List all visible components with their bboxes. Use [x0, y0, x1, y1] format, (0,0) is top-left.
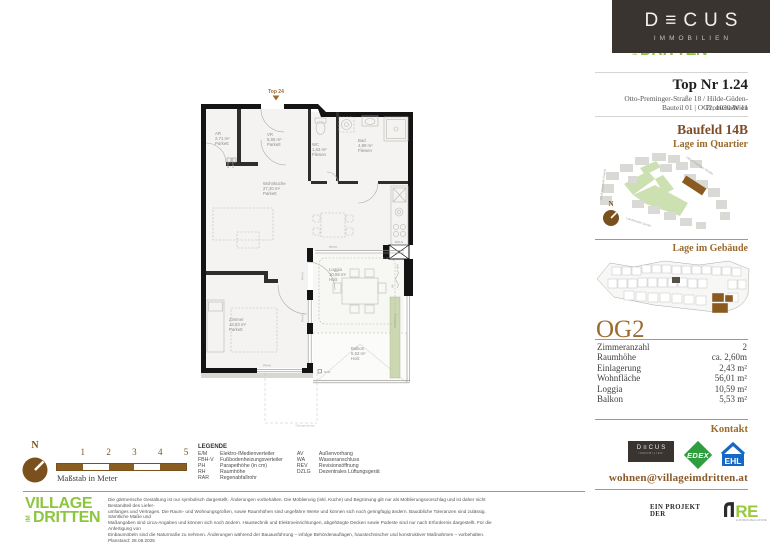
row-label: Wohnfläche [597, 373, 640, 383]
row-label: Raumhöhe [597, 352, 636, 362]
disclaimer-line: Einbaumöbeln sind die Naturmaße zu nehme… [108, 532, 502, 544]
divider [595, 239, 748, 240]
scale-tick: 4 [155, 447, 165, 457]
disclaimer-text: Die gärtnerische Gestaltung ist nur symb… [108, 497, 502, 543]
divider [595, 339, 748, 340]
table-row: Zimmeranzahl2 [597, 342, 747, 352]
legend-entry: RARRegenabfallrohr [198, 476, 283, 482]
row-label: Einlagerung [597, 363, 641, 373]
em-label: E/M [226, 162, 230, 168]
row-value: ca. 2,60m [712, 352, 747, 362]
compass-n-label: N [608, 200, 613, 208]
ph-label: PH=0 [329, 245, 337, 249]
ehl-logo: EHL [719, 442, 747, 468]
entrance-top-label: Top 24 [268, 89, 284, 95]
site-plan-map: Otto-Preminger-Straße Adolf-Blamauer-Gas… [598, 148, 748, 236]
edex-logo: EDEX [681, 440, 715, 471]
ph-label: PH=0 [301, 272, 305, 280]
compass-n-label: N [31, 440, 39, 451]
row-label: Zimmeranzahl [597, 342, 649, 352]
unit-title: Top Nr 1.24 [595, 77, 748, 94]
are-logo: RE AUSTRIAN REAL ESTATE [722, 500, 770, 522]
village-im: IM [22, 514, 36, 522]
table-row: Balkon5,53 m² [597, 394, 747, 404]
disclaimer-line: Die gärtnerische Gestaltung ist nur symb… [108, 497, 502, 509]
are-glyph-icon [724, 502, 734, 517]
divider [595, 419, 748, 420]
row-label: Loggia [597, 384, 623, 394]
disclaimer-line: Maßangaben sind circa-Angaben und können… [108, 520, 502, 532]
address-line2: Bauteil 01 | OG2, 1030 Wien [595, 103, 748, 112]
shaft-box [389, 245, 409, 259]
edex-label: EDEX [681, 451, 715, 460]
building-core [672, 277, 680, 283]
floor-fills [201, 109, 408, 383]
contact-email: wohnen@villageimdritten.at [595, 472, 748, 484]
legend-col1: E/MElektro-/Medienverteiler FBH-VFußbode… [198, 452, 283, 482]
row-value: 10,59 m² [715, 384, 747, 394]
kontakt-heading: Kontakt [595, 424, 748, 435]
decus-contact-logo: D≡CUS IMMOBILIEN [628, 441, 674, 462]
details-table: Zimmeranzahl2 Raumhöheca. 2,60m Einlager… [597, 342, 747, 404]
project-footer: EIN PROJEKT DER RE AUSTRIAN REAL ESTATE [650, 500, 770, 522]
scale-bar-segments [57, 464, 186, 470]
street-label: Landstraßer Gürtel [626, 216, 652, 228]
legend: LEGENDE E/MElektro-/Medienverteiler FBH-… [198, 445, 478, 481]
are-subtitle: AUSTRIAN REAL ESTATE [736, 518, 767, 522]
rar-label: RAR [324, 370, 331, 374]
building-plan [594, 255, 752, 321]
row-value: 2,43 m² [719, 363, 747, 373]
apartment-floorplan: Top 24 AR2,71 m²Parkett VR5,65 m²Parkett… [125, 82, 455, 447]
street-label: Otto-Preminger-Straße [685, 155, 714, 176]
village-logo: VILLAGE IM DRITTEN [25, 497, 100, 525]
planter-strip [390, 297, 400, 378]
decus-subtitle: IMMOBILIEN [628, 452, 674, 455]
table-row: Wohnfläche56,01 m² [597, 373, 747, 383]
dzlg-label: DZLG [395, 240, 404, 244]
divider [23, 491, 585, 492]
scale-tick: 2 [104, 447, 114, 457]
divider [595, 116, 748, 117]
divider [595, 72, 748, 73]
row-value: 56,01 m² [715, 373, 747, 383]
village-line2: DRITTEN [33, 511, 100, 525]
disclaimer-line: umfanges und Vertrages. Die Raum- und Wo… [108, 509, 502, 521]
row-value: 5,53 m² [719, 394, 747, 404]
decus-logo: D≡CUS IMMOBILIEN [612, 0, 770, 53]
plan-compass: N [20, 436, 54, 486]
pflanztrog-label: Pflanztrog [393, 314, 397, 328]
ehl-house-icon: EHL [719, 442, 747, 468]
decus-wordmark: D≡CUS [628, 445, 674, 451]
entrance-arrow-icon [273, 96, 280, 101]
row-label: Balkon [597, 394, 623, 404]
legend-col2: AVAußenvorhang WAWasseranschluss REVRevi… [297, 452, 380, 482]
floorplan-datasheet: Top 24 AR2,71 m²Parkett VR5,65 m²Parkett… [0, 0, 770, 545]
scale-tick: 3 [129, 447, 139, 457]
projection-lines [265, 373, 317, 423]
decus-subtitle: IMMOBILIEN [612, 35, 770, 42]
scale-tick: 5 [181, 447, 191, 457]
scale-label: Maßstab in Meter [57, 473, 187, 483]
decus-wordmark: D≡CUS [612, 10, 770, 32]
row-value: 2 [743, 342, 748, 352]
table-row: Einlagerung2,43 m² [597, 363, 747, 373]
ph-label: PH=0 [263, 364, 271, 368]
fbhv-label: FBH-V [231, 158, 235, 168]
scale-tick: 1 [78, 447, 88, 457]
project-prefix: EIN PROJEKT DER [650, 504, 717, 518]
legend-entry: DZLGDezentrales Lüftungsgerät [297, 470, 380, 476]
ehl-label: EHL [725, 456, 742, 466]
ph-label: PH=0 [301, 314, 305, 322]
obergeschoss-label: Obergeschoss [295, 424, 315, 428]
table-row: Loggia10,59 m² [597, 384, 747, 394]
baufeld-title: Baufeld 14B [595, 122, 748, 138]
divider [595, 489, 748, 490]
entrance-label: Top 24 [268, 89, 284, 101]
table-row: Raumhöheca. 2,60m [597, 352, 747, 362]
gebaeude-heading: Lage im Gebäude [595, 243, 748, 254]
